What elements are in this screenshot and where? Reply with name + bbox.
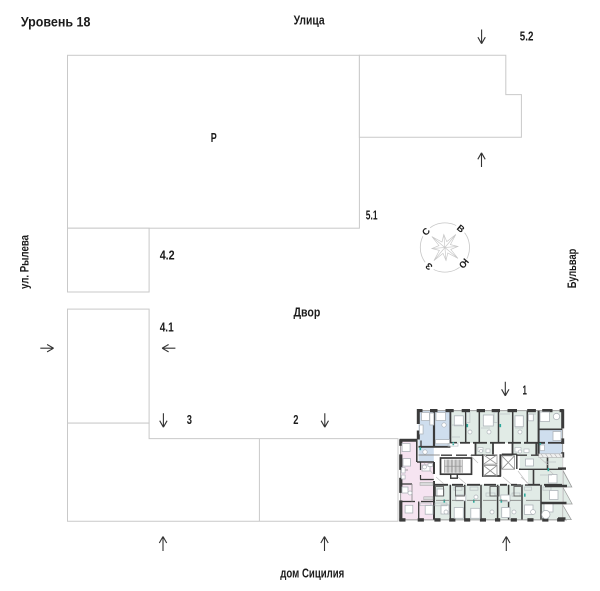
svg-text:Уровень 18: Уровень 18 xyxy=(21,15,91,31)
svg-text:2: 2 xyxy=(293,413,298,427)
svg-text:Бульвар: Бульвар xyxy=(565,248,579,288)
svg-text:Ю: Ю xyxy=(457,256,472,271)
svg-text:Р: Р xyxy=(211,130,217,145)
svg-text:1: 1 xyxy=(523,383,527,397)
svg-text:5.2: 5.2 xyxy=(520,30,534,44)
svg-text:3: 3 xyxy=(187,413,192,427)
svg-text:4.1: 4.1 xyxy=(160,321,174,335)
svg-text:ул. Рылева: ул. Рылева xyxy=(18,235,32,289)
svg-text:Улица: Улица xyxy=(294,12,326,27)
svg-text:4.2: 4.2 xyxy=(160,248,175,262)
svg-text:Двор: Двор xyxy=(294,304,321,319)
svg-text:5.1: 5.1 xyxy=(366,208,378,222)
svg-text:дом Сицилия: дом Сицилия xyxy=(280,565,344,580)
